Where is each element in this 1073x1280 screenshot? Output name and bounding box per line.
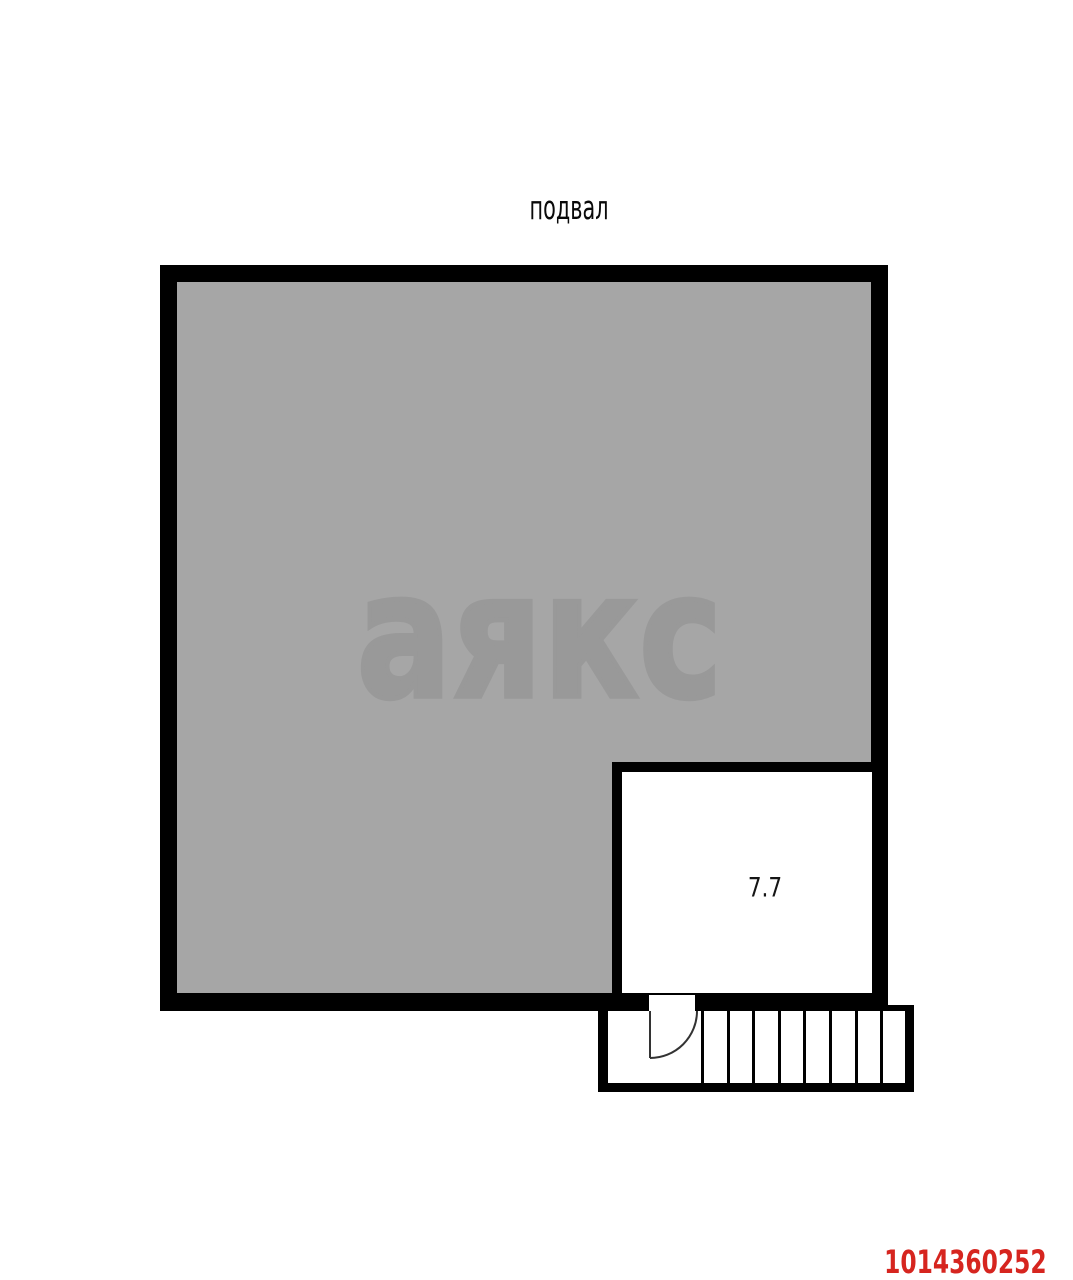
stair-top-wall: [888, 1005, 905, 1011]
stair-right-wall: [905, 1005, 914, 1092]
agency-watermark: аякс: [357, 551, 723, 725]
stair-left-wall: [598, 1011, 608, 1083]
room-77-area-label: 7.7: [748, 873, 782, 904]
stair-tread: [701, 1011, 704, 1083]
staircase: [598, 1011, 914, 1083]
stair-tread: [778, 1011, 781, 1083]
stair-tread: [880, 1011, 883, 1083]
listing-id: 1014360252: [884, 1246, 1047, 1278]
stair-tread: [803, 1011, 806, 1083]
stair-tread: [829, 1011, 832, 1083]
stair-bottom-wall: [598, 1083, 914, 1092]
stair-tread: [855, 1011, 858, 1083]
door-swing-icon: [598, 1011, 914, 1083]
floor-plan-page: подвал аякс 7.7 1014360252: [0, 0, 1073, 1280]
floor-title: подвал: [530, 191, 609, 224]
door-opening: [647, 993, 697, 1011]
stair-tread: [752, 1011, 755, 1083]
stair-tread: [727, 1011, 730, 1083]
